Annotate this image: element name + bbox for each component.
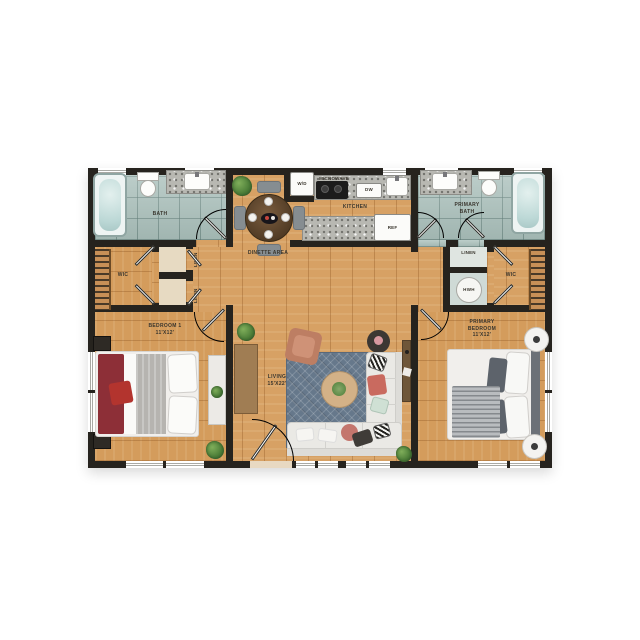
window-mullion: [163, 461, 166, 468]
primary-toilet-bowl: [481, 179, 497, 196]
throw-pillow-white: [295, 427, 314, 442]
potted-plant: [396, 446, 412, 462]
linen-left-top-floor: [159, 247, 186, 272]
throw-pillow-pink: [367, 374, 388, 396]
sofa-back: [395, 352, 402, 430]
water-heater-label: HWH: [456, 277, 482, 303]
place-setting: [264, 230, 273, 239]
primary-bath-faucet: [443, 172, 447, 177]
centerpiece-dot: [271, 216, 275, 220]
dinette-chair: [293, 206, 305, 230]
centerpiece-tray: [261, 213, 278, 224]
bath-faucet: [195, 172, 199, 177]
coffee-table-decor: [332, 382, 346, 396]
wall-wd-bottom: [284, 196, 314, 202]
kitchen-faucet: [395, 176, 399, 181]
pillow: [167, 353, 198, 393]
window-mullion: [545, 390, 552, 393]
kitchen-label: KITCHEN: [330, 204, 380, 211]
primary-bath-door-opening-2: [458, 240, 484, 247]
place-setting: [281, 213, 290, 222]
wic-right-door-opening: [487, 252, 494, 303]
window: [383, 168, 406, 175]
headboard: [531, 347, 540, 442]
wall-bedroom1-right: [226, 305, 233, 468]
bath-label: BATH: [130, 211, 190, 218]
pillow: [504, 351, 531, 395]
wic-left-door-opening: [152, 252, 159, 303]
primary-bath-label: PRIMARY BATH: [438, 202, 496, 215]
primary-bath-name-2: BATH: [438, 209, 496, 216]
living-label: LIVING 15'X22': [250, 374, 304, 387]
bed-blanket: [136, 354, 166, 434]
accent-chair-cushion: [291, 334, 316, 359]
window-mullion: [507, 461, 510, 468]
wall-bath-right: [226, 168, 233, 247]
place-setting: [248, 213, 257, 222]
bedroom1-dims: 11'X12': [130, 330, 200, 337]
window-mullion: [366, 461, 369, 468]
potted-plant: [232, 176, 252, 196]
wall-hall-right: [443, 247, 450, 312]
window-mullion: [315, 461, 318, 468]
living-dims: 15'X22': [250, 381, 304, 388]
centerpiece-dot: [265, 216, 269, 220]
primary-bathtub-basin: [517, 178, 539, 228]
microwave-label: MICROWAVE: [312, 176, 356, 182]
floor-plan: W/D MICROWAVE DW REF KITCHEN DINETTE ARE…: [0, 0, 640, 640]
window-mullion: [88, 390, 95, 393]
accent-pillow: [108, 380, 133, 405]
dresser-plant: [211, 386, 223, 398]
wall-linen-left-divider: [159, 272, 186, 279]
potted-plant: [237, 323, 255, 341]
clothes-rack: [529, 249, 545, 310]
wall-linen-hwh-divider: [450, 267, 487, 273]
toilet-bowl: [140, 180, 156, 197]
wall-kitchen-bottom: [290, 240, 418, 247]
primary-bedroom-label: PRIMARY BEDROOM 11'X12': [450, 319, 514, 339]
wic-left-label: WIC: [98, 272, 148, 279]
clothes-rack: [95, 249, 111, 310]
wall-center-vertical-top: [411, 168, 418, 252]
bedroom1-label: BEDROOM 1 11'X12': [130, 323, 200, 336]
wall-center-vertical-bottom: [411, 305, 418, 461]
refrigerator-label: REF: [374, 225, 411, 231]
bathtub-basin: [99, 179, 121, 231]
place-setting: [264, 197, 273, 206]
nightstand-knob: [533, 336, 540, 343]
range-burner: [321, 185, 329, 193]
primary-bedroom-dims: 11'X12': [450, 332, 514, 339]
potted-plant: [206, 441, 224, 459]
wic-right-label: WIC: [494, 272, 528, 279]
dinette-label: DINETTE AREA: [236, 250, 300, 257]
sofa-back: [287, 448, 402, 456]
throw-pillow-white: [317, 428, 338, 444]
entry-threshold: [250, 461, 292, 468]
pillow: [167, 395, 198, 434]
dinette-chair: [257, 181, 281, 193]
primary-bath-door-opening-1: [418, 240, 446, 247]
side-table-decor: [374, 336, 383, 345]
range-burner: [334, 185, 342, 193]
pillow: [504, 395, 531, 439]
bath-door-opening: [196, 240, 226, 247]
nightstand: [93, 336, 111, 351]
dishwasher-label: DW: [356, 187, 382, 193]
washer-dryer-label: W/D: [290, 181, 314, 187]
nightstand-knob: [531, 443, 538, 450]
bed-ribbed-throw: [452, 386, 500, 438]
desk-knob: [405, 350, 409, 354]
linen-right-label: LINEN: [450, 250, 487, 256]
